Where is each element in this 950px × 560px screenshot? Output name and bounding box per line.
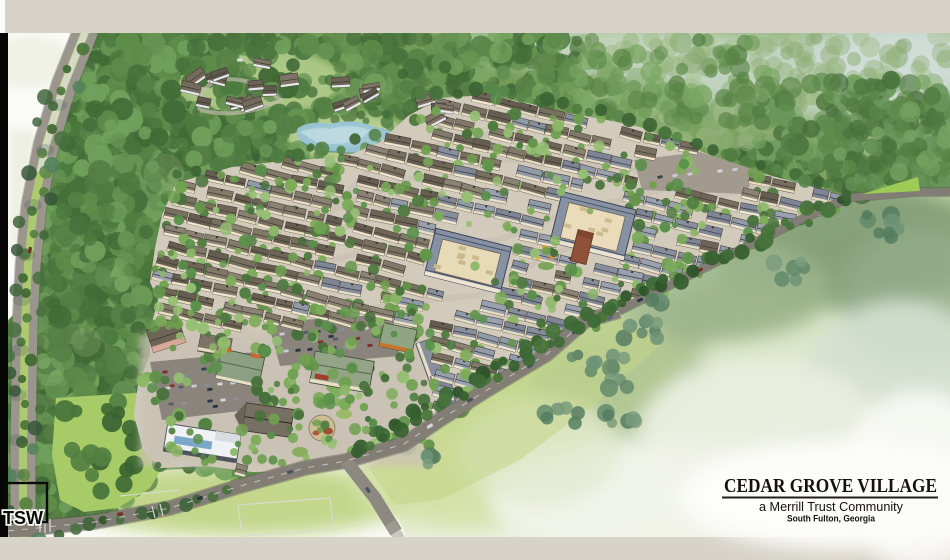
svg-text:TSW: TSW: [3, 508, 43, 528]
svg-text:CEDAR GROVE VILLAGE: CEDAR GROVE VILLAGE: [724, 476, 937, 497]
svg-text:a Merrill Trust Community: a Merrill Trust Community: [759, 500, 904, 514]
svg-text:South Fulton, Georgia: South Fulton, Georgia: [787, 514, 876, 524]
